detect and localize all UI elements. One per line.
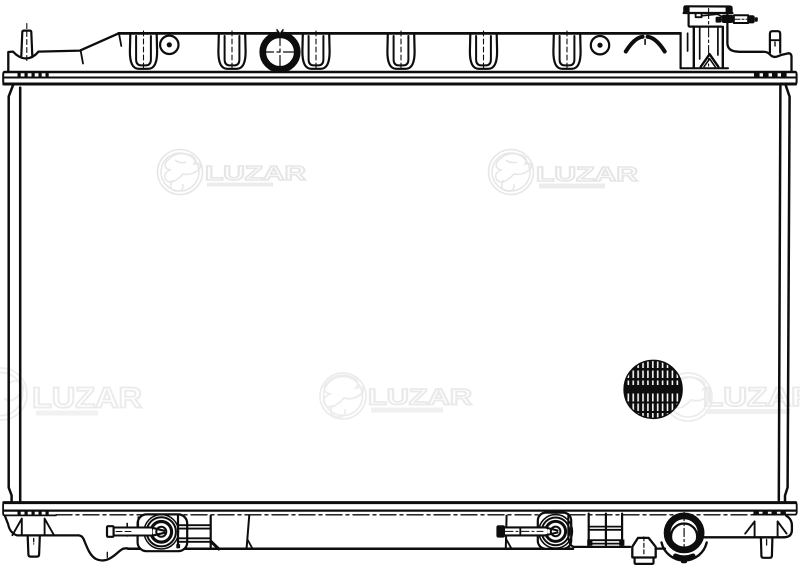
svg-text:LUZAR: LUZAR <box>205 163 307 185</box>
svg-text:LUZAR: LUZAR <box>536 164 639 186</box>
svg-text:LUZAR: LUZAR <box>703 382 800 412</box>
svg-text:LUZAR: LUZAR <box>368 385 472 410</box>
svg-text:LUZAR: LUZAR <box>32 383 142 415</box>
